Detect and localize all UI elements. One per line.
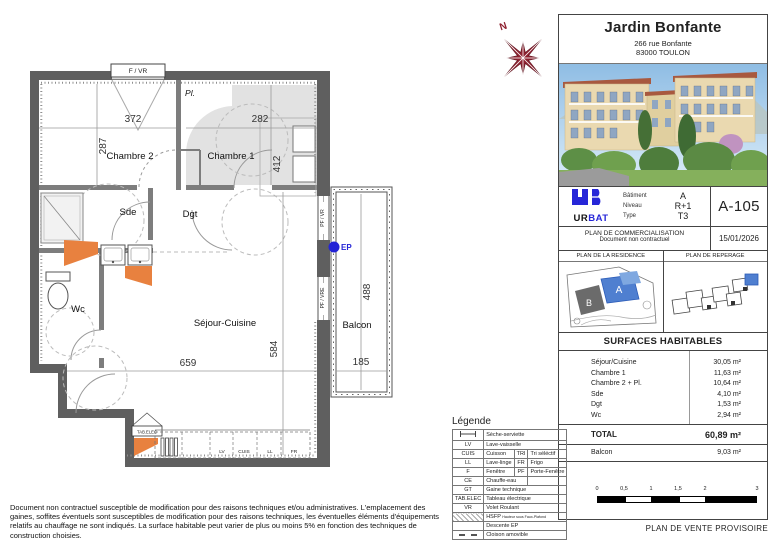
surface-value: 1,53 m²	[689, 400, 767, 411]
document-non-contractuel-label: Document non contractuel	[559, 237, 710, 243]
table-row: FFenêtrePFPorte-Fenêtre	[453, 468, 567, 477]
table-row: Chambre 2 + Pl.10,64 m²	[559, 379, 767, 390]
window-pf-vre: PF / VRE	[317, 277, 330, 320]
total-row: TOTAL 60,89 m²	[559, 424, 767, 444]
legend-label: Descente EP	[484, 522, 567, 531]
reperage-floor-outline	[665, 265, 765, 329]
room-placard: Pl.	[185, 88, 195, 98]
plan-residence-label: PLAN DE LA RESIDENCE	[559, 251, 663, 262]
surface-label: Wc	[559, 411, 689, 422]
dim-659: 659	[180, 358, 197, 369]
rainwater-downpipe-ep: EP	[329, 242, 353, 253]
legend-label: Cloison amovible	[484, 531, 567, 540]
batiment-value: A	[661, 192, 705, 201]
legend-abbr: GT	[453, 486, 484, 495]
commercialisation-row: PLAN DE COMMERCIALISATION Document non c…	[559, 226, 767, 250]
dim-412: 412	[272, 155, 283, 172]
legend-abbr: FR	[514, 459, 528, 468]
table-row: HSFP Hauteur sous Faux-Plafond	[453, 513, 567, 522]
project-header: Jardin Bonfante 266 rue Bonfante 83000 T…	[559, 15, 767, 63]
plan-vente-provisoire-label: PLAN DE VENTE PROVISOIRE	[646, 524, 768, 533]
legend-abbr: CUIS	[453, 450, 484, 459]
radiator-bars	[161, 438, 178, 456]
kitchen-label-ll: LL	[267, 449, 273, 455]
building-b-label: B	[586, 298, 592, 308]
table-row: Descente EP	[453, 522, 567, 531]
table-row: VRVolet Roulant	[453, 504, 567, 513]
room-balcon: Balcon	[342, 320, 371, 331]
table-row: Sèche-serviette	[453, 430, 567, 441]
kitchen-appliance-run: LV CUIS LL FR	[155, 430, 310, 458]
hsfp-text: Hauteur sous Faux-Plafond	[502, 515, 546, 519]
scale-bar	[597, 496, 757, 503]
table-row: Chambre 111,63 m²	[559, 369, 767, 380]
surface-label: Dgt	[559, 400, 689, 411]
surface-value: 2,94 m²	[689, 411, 767, 422]
type-label: Type	[623, 212, 661, 221]
urbat-logo: URBAT	[559, 187, 623, 226]
surface-value: 30,05 m²	[689, 358, 767, 369]
table-row: LLLave-lingeFRFrigo	[453, 459, 567, 468]
ep-label: EP	[341, 243, 352, 252]
total-value: 60,89 m²	[689, 430, 767, 440]
scale-segment	[679, 497, 706, 502]
legend-label: Gaine technique	[484, 486, 567, 495]
table-row: GTGaine technique	[453, 486, 567, 495]
project-address-line1: 266 rue Bonfante	[559, 39, 767, 48]
room-wc: Wc	[71, 304, 85, 315]
legend-empty-cell	[453, 522, 484, 531]
compass-north-label: N	[498, 21, 508, 34]
location-plans-row: PLAN DE LA RESIDENCE B A	[559, 250, 767, 332]
legend-label: Lave-vaisselle	[484, 441, 567, 450]
dim-372: 372	[125, 114, 142, 125]
surface-label: Sde	[559, 390, 689, 401]
plan-commercialisation-label: PLAN DE COMMERCIALISATION	[559, 230, 710, 237]
legend-abbr: VR	[453, 504, 484, 513]
total-label: TOTAL	[559, 430, 689, 439]
table-row: Dgt1,53 m²	[559, 400, 767, 411]
dim-185: 185	[353, 357, 370, 368]
legend-label: HSFP Hauteur sous Faux-Plafond	[484, 513, 567, 522]
legend: Légende Sèche-serviette LVLave-vaisselle…	[452, 416, 562, 540]
toilet	[46, 272, 70, 309]
niveau-value: R+1	[661, 202, 705, 211]
window-label-f-vr: F / VR	[129, 68, 148, 75]
legend-table: Sèche-serviette LVLave-vaisselle CUISCui…	[452, 429, 567, 540]
batiment-label: Bâtiment	[623, 192, 661, 201]
legend-label: Frigo	[528, 459, 567, 468]
surface-value: 4,10 m²	[689, 390, 767, 401]
scale-segment	[706, 497, 756, 502]
type-value: T3	[661, 212, 705, 221]
table-row: CEChauffe-eau	[453, 477, 567, 486]
legend-abbr: LV	[453, 441, 484, 450]
scale-segment	[598, 497, 625, 502]
plan-date: 15/01/2026	[710, 227, 767, 250]
room-chambre1: Chambre 1	[208, 151, 255, 162]
scale-section: 0 0,5 1 1,5 2 3	[559, 461, 767, 519]
shower-tray	[41, 193, 83, 243]
legend-abbr: CE	[453, 477, 484, 486]
legend-abbr: LL	[453, 459, 484, 468]
legend-label: Porte-Fenêtre	[528, 468, 567, 477]
room-dgt: Dgt	[183, 209, 198, 220]
plan-reperage-thumb: PLAN DE REPERAGE	[663, 251, 768, 332]
plan-residence-thumb: PLAN DE LA RESIDENCE B A	[559, 251, 663, 332]
balcon-value: 9,03 m²	[689, 448, 767, 459]
surfaces-table-divider	[689, 351, 690, 424]
table-row: Wc2,94 m²	[559, 411, 767, 422]
legend-empty-cell	[528, 477, 567, 486]
surface-label: Chambre 1	[559, 369, 689, 380]
electrical-panel: TAB.ELEC	[132, 413, 162, 436]
urbat-logo-mark	[570, 189, 612, 212]
scale-segment	[625, 497, 652, 502]
plan-de-vente-page: F / VR	[0, 0, 780, 551]
surface-label: Séjour/Cuisine	[559, 358, 689, 369]
unit-info-row: URBAT BâtimentA NiveauR+1 TypeT3 A-105	[559, 186, 767, 226]
project-title: Jardin Bonfante	[559, 19, 767, 36]
urbat-word-bat: BAT	[588, 213, 608, 224]
scale-segment	[652, 497, 679, 502]
legend-abbr: TRI	[514, 450, 528, 459]
floor-plan-drawing: F / VR	[0, 0, 460, 500]
table-row: Séjour/Cuisine30,05 m²	[559, 358, 767, 369]
legend-label: Volet Roulant	[484, 504, 567, 513]
disclaimer-text: Document non contractuel susceptible de …	[10, 503, 448, 540]
legend-label: Chauffe-eau	[484, 477, 528, 486]
room-sde: Sde	[120, 207, 137, 218]
legend-label: Lave-linge	[484, 459, 514, 468]
building-a-label: A	[615, 285, 622, 296]
unit-attributes: BâtimentA NiveauR+1 TypeT3	[623, 187, 710, 226]
table-row: Cloison amovible	[453, 531, 567, 540]
unit-number: A-105	[710, 187, 767, 226]
tab-elec-label: TAB.ELEC	[137, 430, 157, 435]
legend-abbr: TAB.ELEC	[453, 495, 484, 504]
table-row: Sde4,10 m²	[559, 390, 767, 401]
scale-tick: 0,5	[620, 486, 628, 492]
dashed-partition-icon	[453, 531, 484, 540]
scale-tick: 2	[703, 486, 706, 492]
scale-tick: 1,5	[674, 486, 682, 492]
hatch-icon	[453, 513, 484, 522]
legend-label: Tri séléctif	[528, 450, 567, 459]
legend-label: Fenêtre	[484, 468, 514, 477]
niveau-label: Niveau	[623, 202, 661, 211]
scale-tick: 3	[755, 486, 758, 492]
legend-abbr: PF	[514, 468, 528, 477]
table-row: TAB.ELECTableau électrique	[453, 495, 567, 504]
legend-abbr: F	[453, 468, 484, 477]
table-row: LVLave-vaisselle	[453, 441, 567, 450]
project-address-line2: 83000 TOULON	[559, 48, 767, 57]
scale-tick: 1	[649, 486, 652, 492]
plan-reperage-label: PLAN DE REPERAGE	[664, 251, 768, 262]
legend-label: Cuisson	[484, 450, 514, 459]
surface-value: 10,64 m²	[689, 379, 767, 390]
balcon-label: Balcon	[559, 448, 689, 459]
scale-tick: 0	[595, 486, 598, 492]
towel-radiators	[64, 240, 158, 456]
residence-site-plan: B A	[561, 265, 661, 329]
window-label-pf-vr: PF / VR	[320, 209, 326, 227]
kitchen-label-cuis: CUIS	[238, 449, 249, 455]
legend-label: Tableau électrique	[484, 495, 567, 504]
scale-tick-labels: 0 0,5 1 1,5 2 3	[597, 486, 757, 494]
dim-584: 584	[269, 340, 280, 357]
legend-label: Sèche-serviette	[484, 430, 567, 441]
surface-label: Chambre 2 + Pl.	[559, 379, 689, 390]
surfaces-habitables-title: SURFACES HABITABLES	[559, 332, 767, 350]
urbat-word-ur: UR	[573, 213, 588, 224]
legend-title: Légende	[452, 416, 562, 427]
dim-282: 282	[252, 114, 269, 125]
balcon-row: Balcon9,03 m²	[559, 444, 767, 461]
kitchen-label-lv: LV	[219, 449, 225, 455]
window-label-pf-vre: PF / VRE	[320, 287, 326, 309]
hsfp-abbr: HSFP	[486, 514, 501, 520]
surfaces-table: Séjour/Cuisine30,05 m² Chambre 111,63 m²…	[559, 350, 767, 424]
surface-value: 11,63 m²	[689, 369, 767, 380]
room-sejour-cuisine: Séjour-Cuisine	[194, 318, 256, 329]
kitchen-label-fr: FR	[291, 449, 298, 455]
residence-rendering-image	[559, 63, 767, 186]
dim-488: 488	[362, 283, 373, 300]
room-chambre2: Chambre 2	[107, 151, 154, 162]
title-block-panel: Jardin Bonfante 266 rue Bonfante 83000 T…	[558, 14, 768, 520]
compass-rose: N	[494, 14, 552, 84]
table-row: CUISCuissonTRITri séléctif	[453, 450, 567, 459]
urbat-wordmark: URBAT	[573, 213, 608, 224]
towel-radiator-icon	[453, 430, 484, 441]
window-pf-vr: PF / VR	[317, 196, 330, 240]
